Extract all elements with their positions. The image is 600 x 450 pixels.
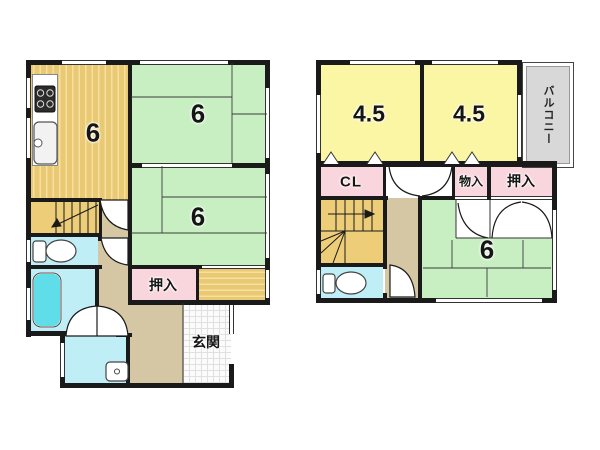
window [350,60,415,65]
window [60,343,65,377]
window [432,60,498,65]
wall [418,196,422,303]
window [316,270,321,294]
monoire-label: 物入 [459,173,483,190]
wall [26,331,68,336]
wall [98,233,102,241]
oshiire-label: 押入 [507,171,535,191]
wall [26,265,102,269]
window [316,95,321,153]
hall-door-area-2f [386,165,452,196]
window [265,88,270,158]
window [26,240,31,262]
window [140,60,228,65]
window [26,288,31,320]
toilet-room-1f [28,235,98,267]
genkan-label: 玄関 [192,332,220,352]
room-size-label: 4.5 [453,101,485,128]
washroom-1f [62,335,130,385]
window [26,78,31,108]
window [265,270,270,298]
wall [128,163,132,267]
wall [229,300,270,305]
wall [196,267,199,302]
sliding-door [491,196,552,200]
wall [128,265,202,269]
wall [487,161,491,198]
wall [95,265,99,309]
hallway-2f [385,198,418,298]
cl-label: CL [340,174,362,191]
wall [26,233,102,237]
window [265,174,270,258]
oshiire-label: 押入 [149,275,177,295]
wall [128,300,229,305]
toilet-room-2f [321,267,383,298]
window [436,298,542,303]
balcony-door [517,95,522,157]
sliding-door [142,163,232,168]
stairs-1f [28,198,102,235]
balcony-floor: バルコニー [526,66,570,164]
wall [316,196,388,200]
wall [60,383,234,388]
wall [452,165,455,196]
window [229,305,234,334]
wall [99,198,102,235]
wall [128,267,132,304]
wall [232,163,270,168]
window [552,210,557,290]
sliding-door [202,265,265,269]
floor-plan-canvas: バルコニー [0,0,600,450]
wall [126,333,130,385]
wood-veranda-strip [198,267,267,302]
kitchen-counter [32,74,58,166]
room-size-label: 6 [86,118,100,149]
window [26,118,31,158]
room-size-label: 6 [480,235,494,266]
room-size-label: 4.5 [353,101,385,128]
wall [420,60,424,166]
wall [383,196,387,265]
wall [26,198,102,202]
wall [383,293,387,299]
sliding-door [455,196,487,200]
wall [383,165,386,196]
stairs-2f [321,200,383,263]
room-size-label: 6 [191,99,205,130]
wall [383,263,387,269]
balcony: バルコニー [522,62,574,168]
room-size-label: 6 [191,202,205,233]
balcony-label: バルコニー [540,85,556,145]
wall [316,263,387,267]
window [62,60,106,65]
wall [316,161,557,167]
closet-door-area-2f [456,200,552,238]
bathroom-1f [28,267,95,335]
